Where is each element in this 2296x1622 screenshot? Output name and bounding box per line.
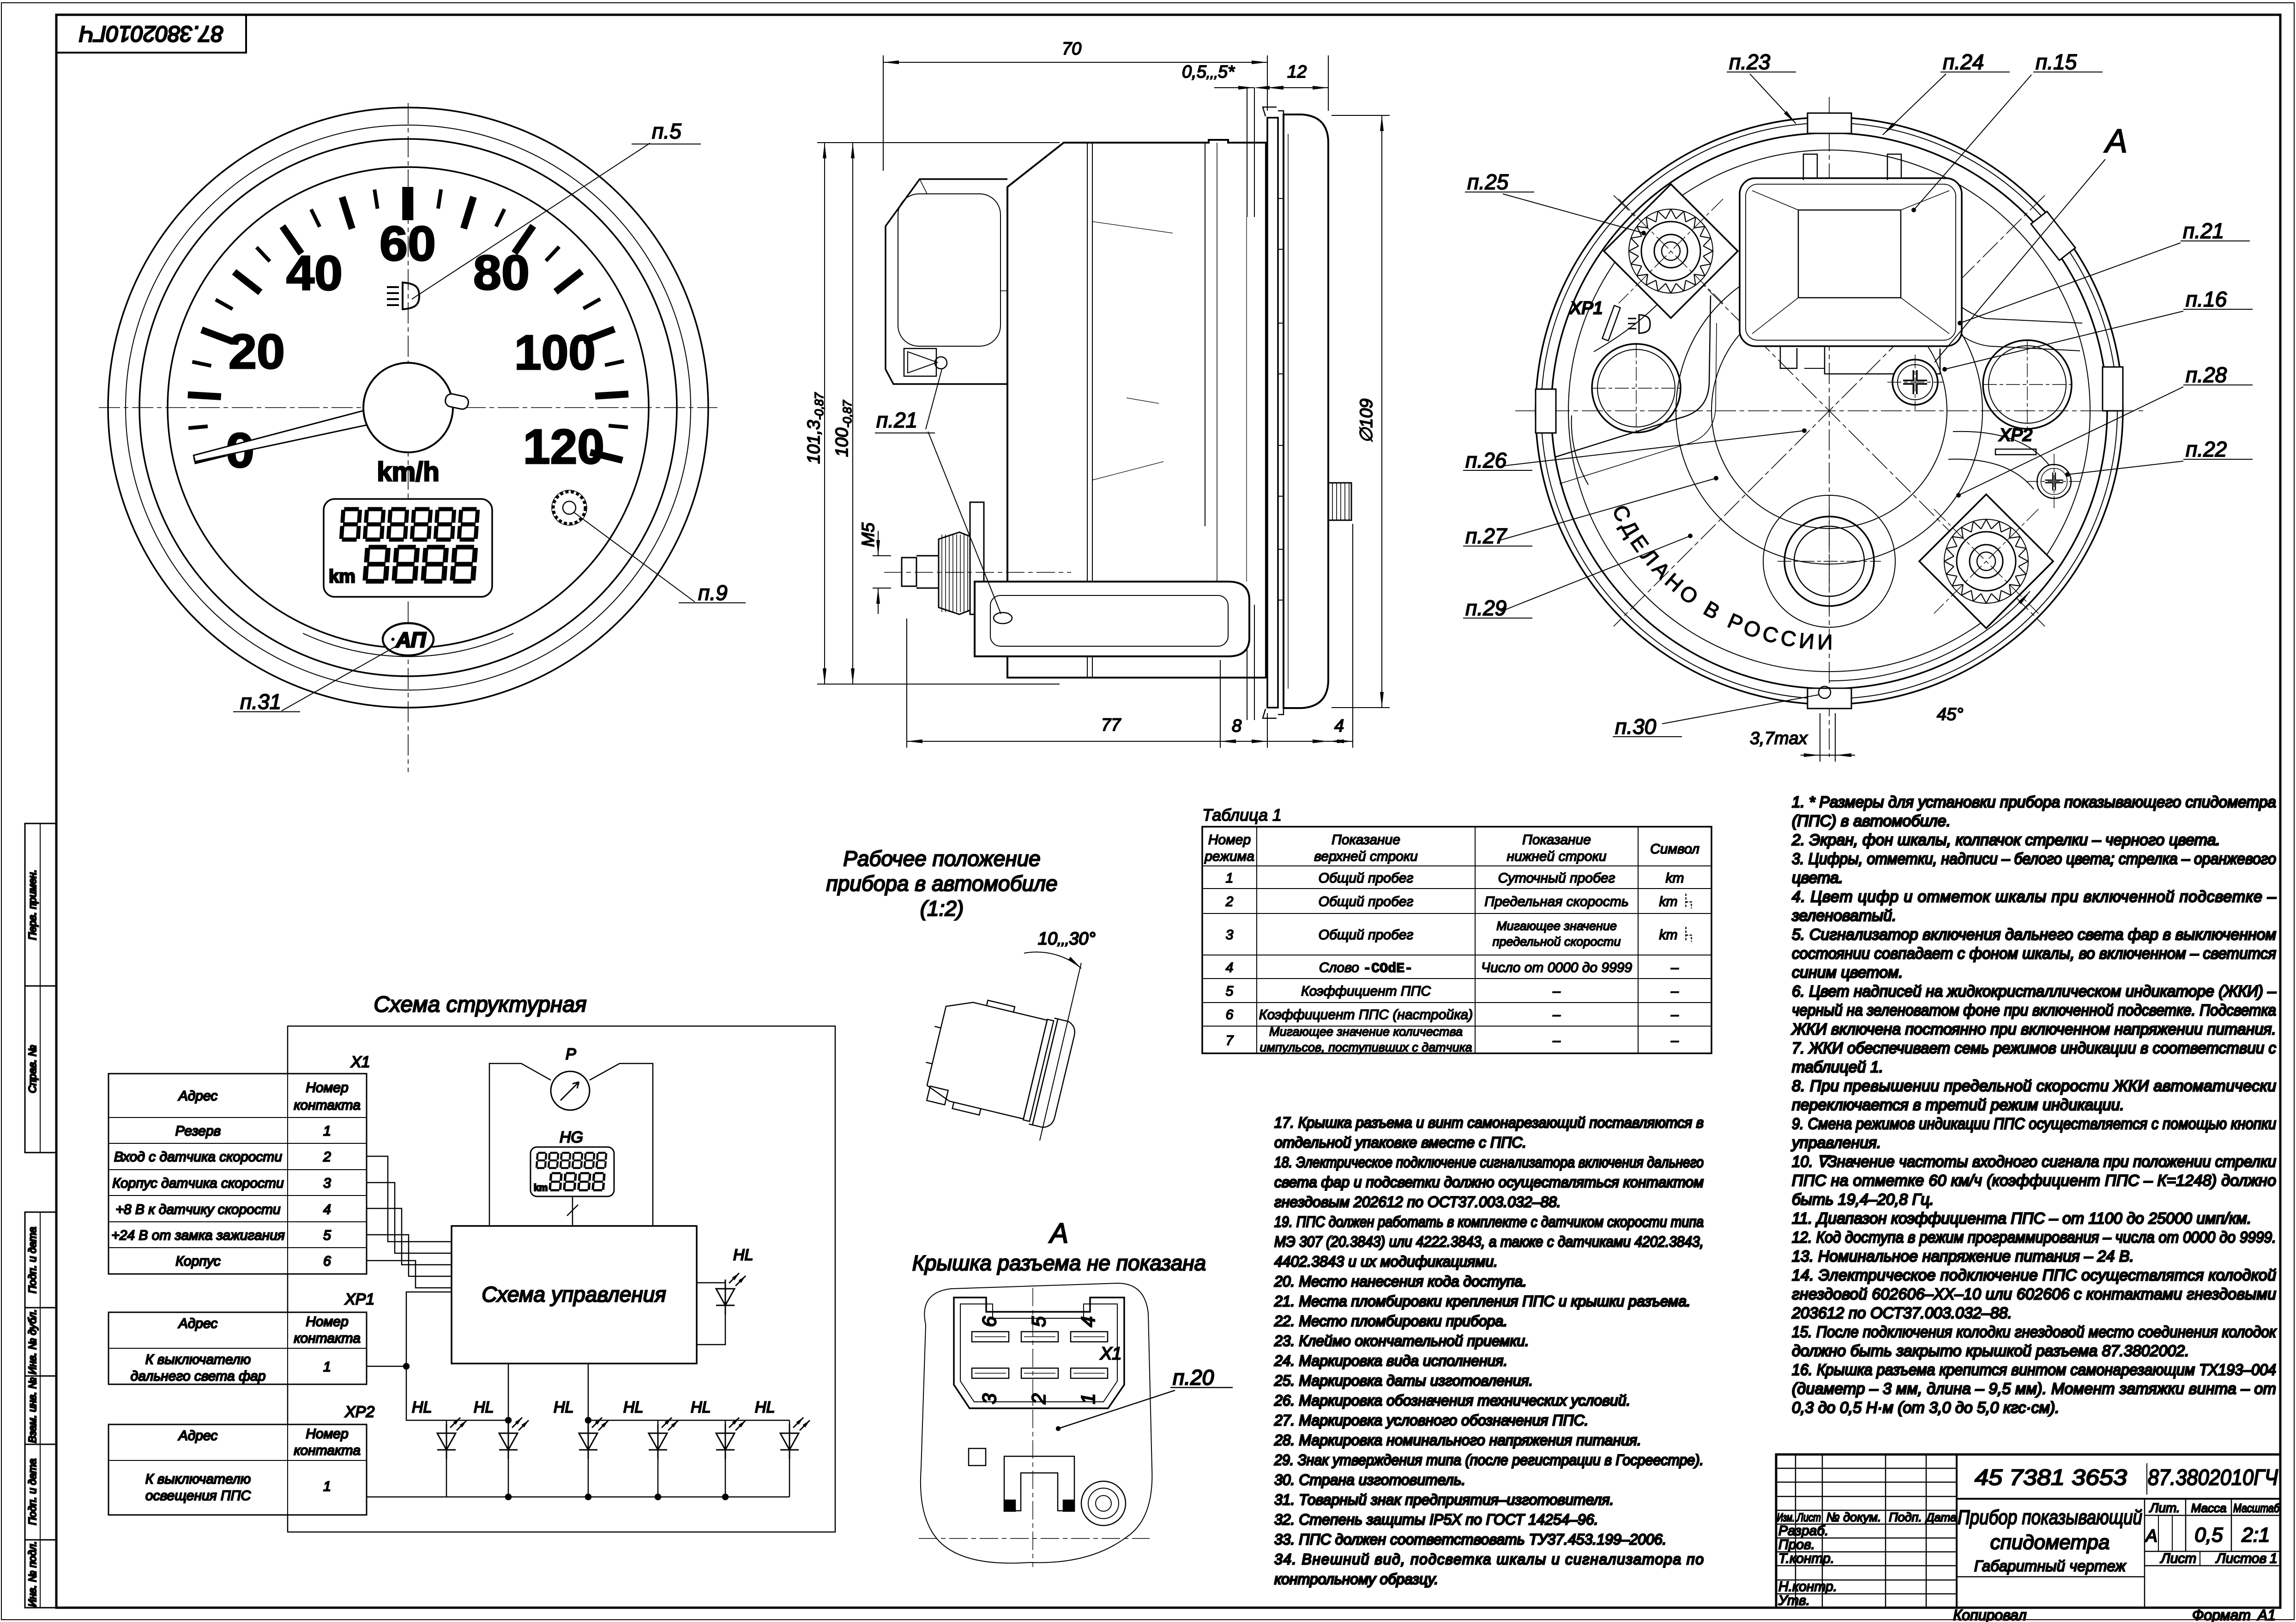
svg-text:1: 1 — [1226, 871, 1234, 886]
svg-text:п.21: п.21 — [2183, 219, 2224, 243]
svg-text:Прибор показывающий: Прибор показывающий — [1958, 1506, 2142, 1529]
svg-text:Перв. примен.: Перв. примен. — [26, 870, 38, 940]
svg-text:Листов: Листов — [2215, 1551, 2266, 1566]
svg-text:(ППС) в автомобиле.: (ППС) в автомобиле. — [1792, 812, 1951, 830]
svg-text:отдельной упаковке вместе с ПП: отдельной упаковке вместе с ППС. — [1274, 1134, 1526, 1151]
svg-text:23. Клеймо окончательной прием: 23. Клеймо окончательной приемки. — [1274, 1333, 1529, 1349]
svg-text:переключается в третий режим и: переключается в третий режим индикации. — [1792, 1096, 2124, 1114]
svg-text:Копировал: Копировал — [1953, 1607, 2026, 1622]
svg-text:1. * Размеры для установки при: 1. * Размеры для установки прибора показ… — [1792, 793, 2276, 811]
svg-text:Предельная скорость: Предельная скорость — [1484, 894, 1628, 909]
svg-text:Масса: Масса — [2191, 1501, 2227, 1515]
svg-text:п.25: п.25 — [1467, 170, 1509, 194]
svg-text:77: 77 — [1101, 715, 1121, 735]
svg-text:таблицей 1.: таблицей 1. — [1792, 1058, 1883, 1076]
svg-text:прибора в автомобиле: прибора в автомобиле — [826, 871, 1057, 895]
svg-text:ХР1: ХР1 — [1569, 299, 1603, 318]
svg-text:быть 19,4–20,8 Гц.: быть 19,4–20,8 Гц. — [1792, 1191, 1934, 1208]
svg-text:5: 5 — [1028, 1316, 1049, 1327]
svg-text:3: 3 — [978, 1394, 1000, 1404]
svg-text:управления.: управления. — [1791, 1134, 1881, 1152]
svg-text:режима: режима — [1204, 849, 1254, 864]
svg-text:13. Номинальное напряжение пит: 13. Номинальное напряжение питания – 24 … — [1792, 1248, 2134, 1265]
svg-text:5. Сигнализатор включения даль: 5. Сигнализатор включения дальнего света… — [1792, 926, 2276, 943]
svg-text:–: – — [1552, 1033, 1561, 1048]
svg-text:–: – — [1670, 1007, 1679, 1022]
svg-text:Резерв: Резерв — [175, 1123, 221, 1139]
svg-text:–: – — [1552, 1007, 1561, 1022]
svg-text:Показание: Показание — [1332, 832, 1400, 847]
svg-text:6: 6 — [323, 1254, 331, 1269]
svg-text:203612 по ОСТ37.003.032–88.: 203612 по ОСТ37.003.032–88. — [1791, 1304, 2012, 1322]
svg-text:Слово -COdE-: Слово -COdE- — [1319, 960, 1413, 977]
svg-text:Н.контр.: Н.контр. — [1778, 1579, 1837, 1594]
svg-text:Масштаб: Масштаб — [2233, 1501, 2280, 1515]
svg-text:km/h: km/h — [377, 457, 439, 487]
svg-text:п.5: п.5 — [652, 119, 681, 143]
svg-text:Номер: Номер — [306, 1426, 348, 1442]
svg-text:4402.3843 и их модификациями.: 4402.3843 и их модификациями. — [1274, 1253, 1498, 1270]
svg-text:Лист: Лист — [1796, 1511, 1821, 1524]
svg-text:Номер: Номер — [306, 1314, 348, 1329]
svg-text:импульсов, поступивших с датчи: импульсов, поступивших с датчика — [1260, 1040, 1472, 1054]
svg-text:Мигающее значение: Мигающее значение — [1496, 919, 1617, 933]
svg-text:km: km — [1659, 927, 1678, 943]
svg-text:Крышка разъема не показана: Крышка разъема не показана — [912, 1251, 1206, 1275]
svg-text:12. Код доступа в режим програ: 12. Код доступа в режим программирования… — [1792, 1229, 2276, 1246]
svg-text:Габаритный чертеж: Габаритный чертеж — [1974, 1557, 2127, 1574]
svg-text:33. ППС должен соответствовать: 33. ППС должен соответствовать ТУ37.453.… — [1274, 1531, 1667, 1548]
svg-text:Адрес: Адрес — [178, 1316, 218, 1331]
svg-text:40: 40 — [286, 246, 343, 300]
svg-text:10. ∇Значение частоты входного: 10. ∇Значение частоты входного сигнала п… — [1792, 1153, 2276, 1171]
svg-text:НL: НL — [691, 1399, 711, 1416]
svg-text:2:1: 2:1 — [2241, 1524, 2270, 1546]
svg-text:спидометра: спидометра — [1990, 1531, 2110, 1554]
svg-text:15. После подключения колодки: 15. После подключения колодки гнездовой … — [1792, 1323, 2277, 1341]
svg-text:НL: НL — [755, 1399, 775, 1416]
svg-text:2: 2 — [1028, 1394, 1049, 1405]
svg-text:Утв.: Утв. — [1778, 1593, 1810, 1608]
svg-text:А: А — [1049, 1218, 1068, 1249]
svg-text:АП: АП — [395, 628, 426, 652]
svg-text:ХР2: ХР2 — [344, 1403, 374, 1421]
svg-text:Адрес: Адрес — [178, 1088, 218, 1104]
svg-text:3. Цифры, отметки, надписи – б: 3. Цифры, отметки, надписи – белого цвет… — [1792, 850, 2276, 868]
svg-text:Суточный пробег: Суточный пробег — [1498, 871, 1615, 886]
svg-text:Подп. и дата: Подп. и дата — [26, 1459, 38, 1525]
svg-text:контакта: контакта — [294, 1443, 361, 1458]
svg-text:А: А — [2145, 1526, 2157, 1546]
svg-text:Подп.: Подп. — [1889, 1510, 1922, 1524]
svg-text:km: km — [534, 1183, 548, 1193]
svg-text:17. Крышка разъема и винт само: 17. Крышка разъема и винт самонарезающий… — [1274, 1114, 1704, 1131]
svg-text:18. Электрическое подключение: 18. Электрическое подключение сигнализат… — [1274, 1154, 1704, 1171]
svg-text:света фар и подсветки должно о: света фар и подсветки должно осуществлят… — [1274, 1174, 1704, 1190]
svg-text:–: – — [1670, 984, 1679, 999]
svg-text:Число от 0000 до 9999: Число от 0000 до 9999 — [1481, 960, 1633, 975]
svg-text:Таблица 1: Таблица 1 — [1202, 805, 1282, 824]
svg-text:п.15: п.15 — [2036, 50, 2077, 74]
svg-text:Дата: Дата — [1925, 1511, 1957, 1524]
svg-text:освещения ППС: освещения ППС — [145, 1488, 251, 1503]
svg-text:нижней строки: нижней строки — [1507, 849, 1607, 864]
svg-text:Корпус: Корпус — [175, 1254, 221, 1269]
svg-text:3: 3 — [323, 1176, 331, 1191]
svg-text:Пров.: Пров. — [1778, 1537, 1815, 1552]
svg-text:Номер: Номер — [1208, 832, 1251, 847]
svg-text:Изм.: Изм. — [1777, 1511, 1795, 1524]
svg-text:1: 1 — [2270, 1551, 2278, 1566]
svg-text:ЖКИ включена постоянно при вкл: ЖКИ включена постоянно при включенном на… — [1791, 1021, 2276, 1038]
svg-text:27. Маркировка условного обозн: 27. Маркировка условного обозначения ППС… — [1274, 1412, 1589, 1429]
svg-text:25. Маркировка даты изготовлен: 25. Маркировка даты изготовления. — [1274, 1372, 1533, 1389]
svg-text:Номер: Номер — [306, 1080, 348, 1095]
svg-text:45°: 45° — [1937, 705, 1963, 724]
svg-text:1: 1 — [323, 1359, 331, 1375]
svg-text:(диаметр – 3 мм, длина – 9,5 м: (диаметр – 3 мм, длина – 9,5 мм). Момент… — [1792, 1380, 2276, 1398]
svg-text:7. ЖКИ обеспечивает семь режим: 7. ЖКИ обеспечивает семь режимов индикац… — [1792, 1039, 2276, 1057]
svg-text:Лит.: Лит. — [2149, 1501, 2180, 1515]
svg-text:Коэффициент ППС: Коэффициент ППС — [1301, 984, 1431, 999]
svg-text:70: 70 — [1062, 39, 1081, 59]
svg-text:3: 3 — [1226, 927, 1234, 943]
svg-text:Общий пробег: Общий пробег — [1319, 927, 1414, 943]
svg-text:Корпус датчика скорости: Корпус датчика скорости — [112, 1176, 284, 1191]
svg-text:п.31: п.31 — [240, 690, 281, 714]
svg-text:синим цветом.: синим цветом. — [1792, 964, 1903, 981]
svg-text:п.22: п.22 — [2186, 437, 2227, 461]
svg-text:Подп. и дата: Подп. и дата — [26, 1227, 38, 1293]
svg-text:∅109: ∅109 — [1357, 398, 1376, 443]
svg-text:45 7381 3653: 45 7381 3653 — [1975, 1466, 2127, 1490]
svg-text:+8 В к датчику скорости: +8 В к датчику скорости — [115, 1202, 281, 1217]
svg-text:(1:2): (1:2) — [920, 896, 964, 920]
svg-text:А1: А1 — [2257, 1607, 2276, 1622]
svg-text:Инв. № подл.: Инв. № подл. — [26, 1541, 38, 1607]
svg-text:п.16: п.16 — [2186, 287, 2227, 311]
svg-text:Общий пробег: Общий пробег — [1319, 871, 1414, 886]
svg-text:дальнего света фар: дальнего света фар — [131, 1369, 266, 1384]
svg-text:4: 4 — [1226, 960, 1234, 975]
svg-text:Схема структурная: Схема структурная — [374, 992, 586, 1017]
svg-text:7: 7 — [1226, 1033, 1234, 1048]
svg-text:6: 6 — [978, 1316, 1000, 1327]
svg-text:Х1: Х1 — [350, 1053, 370, 1071]
svg-text:Символ: Символ — [1650, 841, 1699, 857]
svg-text:3,7mах: 3,7mах — [1750, 729, 1808, 748]
svg-text:30. Страна изготовитель.: 30. Страна изготовитель. — [1274, 1472, 1465, 1488]
svg-text:0,5,,,5*: 0,5,,,5* — [1182, 62, 1235, 82]
svg-text:контакта: контакта — [294, 1098, 361, 1113]
svg-text:Инв. № дубл.: Инв. № дубл. — [26, 1309, 38, 1374]
svg-text:предельной скорости: предельной скорости — [1493, 935, 1621, 949]
svg-text:1: 1 — [323, 1123, 331, 1139]
svg-text:2. Экран, фон шкалы, колпачок: 2. Экран, фон шкалы, колпачок стрелки – … — [1791, 831, 2220, 849]
svg-text:–: – — [1552, 984, 1561, 999]
svg-text:НG: НG — [560, 1129, 583, 1146]
svg-text:km: km — [1666, 871, 1684, 886]
svg-text:должно быть закрыто крышкой ра: должно быть закрыто крышкой разъема 87.3… — [1792, 1342, 2189, 1360]
svg-text:26. Маркировка обозначения тех: 26. Маркировка обозначения технических у… — [1274, 1392, 1630, 1409]
svg-text:ХР1: ХР1 — [344, 1291, 374, 1308]
svg-text:п.24: п.24 — [1943, 50, 1984, 74]
svg-text:Вход с датчика скорости: Вход с датчика скорости — [114, 1149, 282, 1165]
svg-text:24. Маркировка вида исполнения: 24. Маркировка вида исполнения. — [1274, 1352, 1507, 1369]
svg-text:31. Товарный знак предприятия–: 31. Товарный знак предприятия–изготовите… — [1274, 1491, 1614, 1508]
svg-text:12: 12 — [1287, 62, 1307, 82]
svg-text:0,5: 0,5 — [2194, 1524, 2223, 1546]
svg-text:28. Маркировка номинального на: 28. Маркировка номинального напряжения п… — [1274, 1432, 1641, 1448]
svg-text:зеленоватый.: зеленоватый. — [1791, 907, 1897, 925]
svg-text:К выключателю: К выключателю — [145, 1352, 251, 1367]
svg-text:М5: М5 — [859, 522, 878, 547]
svg-text:Общий пробег: Общий пробег — [1319, 894, 1414, 909]
svg-text:Схема управления: Схема управления — [482, 1282, 666, 1306]
svg-text:4: 4 — [323, 1202, 331, 1217]
svg-text:5: 5 — [1226, 984, 1234, 999]
svg-text:2: 2 — [323, 1149, 331, 1165]
svg-text:10,,,30°: 10,,,30° — [1038, 929, 1096, 949]
svg-text:34. Внешний вид, подсветка шка: 34. Внешний вид, подсветка шкалы и сигна… — [1274, 1551, 1704, 1568]
svg-text:п.9: п.9 — [698, 581, 728, 605]
svg-text:Х1: Х1 — [1100, 1344, 1121, 1364]
svg-text:Адрес: Адрес — [178, 1428, 218, 1443]
svg-text:1: 1 — [323, 1479, 331, 1494]
svg-text:87.3802010ГЧ: 87.3802010ГЧ — [2148, 1466, 2278, 1490]
svg-text:Показание: Показание — [1522, 832, 1591, 847]
svg-text:черный на зеленоватом фоне при: черный на зеленоватом фоне при включенно… — [1792, 1002, 2276, 1019]
svg-text:Р: Р — [566, 1045, 576, 1063]
svg-text:цвета.: цвета. — [1792, 869, 1843, 887]
svg-text:22. Место пломбировки прибора.: 22. Место пломбировки прибора. — [1274, 1313, 1507, 1329]
svg-text:9. Смена режимов индикации ППС: 9. Смена режимов индикации ППС осуществл… — [1792, 1115, 2276, 1133]
svg-text:6: 6 — [1226, 1007, 1234, 1022]
svg-text:Справ. №: Справ. № — [26, 1045, 38, 1093]
svg-text:НL: НL — [554, 1399, 573, 1416]
svg-text:14. Электрическое подключение: 14. Электрическое подключение ППС осущес… — [1792, 1267, 2276, 1284]
svg-text:20. Место нанесения кода досту: 20. Место нанесения кода доступа. — [1274, 1273, 1527, 1290]
svg-text:–: – — [1670, 960, 1679, 975]
svg-text:6. Цвет надписей на жидкокрист: 6. Цвет надписей на жидкокристаллическом… — [1792, 983, 2277, 1000]
svg-text:Лист: Лист — [2160, 1551, 2196, 1566]
svg-text:8. При превышении предельной с: 8. При превышении предельной скорости ЖК… — [1792, 1077, 2276, 1095]
svg-text:А: А — [2103, 123, 2127, 160]
svg-text:4. Цвет цифр и отметок шкалы п: 4. Цвет цифр и отметок шкалы при включен… — [1792, 888, 2277, 906]
svg-text:1: 1 — [1077, 1394, 1099, 1404]
svg-text:контакта: контакта — [294, 1331, 361, 1346]
svg-text:11. Диапазон коэффициента ППС: 11. Диапазон коэффициента ППС – от 1100 … — [1792, 1210, 2251, 1227]
svg-text:100: 100 — [514, 325, 596, 380]
svg-text:87.3802010ГЧ: 87.3802010ГЧ — [79, 21, 223, 46]
svg-text:№ докум.: № докум. — [1826, 1510, 1881, 1524]
svg-text:19. ППС должен работать в комп: 19. ППС должен работать в комплекте с да… — [1274, 1213, 1704, 1230]
svg-text:60: 60 — [380, 216, 436, 271]
svg-text:гнездовым 202612 по ОСТ37.003.: гнездовым 202612 по ОСТ37.003.032–88. — [1274, 1194, 1561, 1210]
svg-text:гнездовой 602606–ХХ–10 или 602: гнездовой 602606–ХХ–10 или 602606 с конт… — [1792, 1286, 2276, 1303]
svg-text:Взам. инв. №: Взам. инв. № — [26, 1377, 38, 1443]
svg-text:п.23: п.23 — [1729, 50, 1771, 74]
svg-text:п.21: п.21 — [876, 408, 917, 432]
svg-text:ХР2: ХР2 — [1999, 426, 2032, 445]
svg-text:верхней строки: верхней строки — [1314, 849, 1418, 864]
svg-text:п.30: п.30 — [1615, 715, 1657, 739]
svg-text:ППС на отметке 60 км/ч (коэффи: ППС на отметке 60 км/ч (коэффициент ППС … — [1792, 1172, 2276, 1189]
svg-text:5: 5 — [323, 1228, 331, 1243]
svg-text:8: 8 — [1232, 716, 1241, 736]
svg-text:Рабочее положение: Рабочее положение — [843, 847, 1041, 871]
svg-text:Разраб.: Разраб. — [1778, 1523, 1829, 1538]
svg-text:п.27: п.27 — [1465, 524, 1507, 548]
svg-text:Т.контр.: Т.контр. — [1778, 1551, 1834, 1566]
svg-text:29. Знак утверждения типа (пос: 29. Знак утверждения типа (после регистр… — [1274, 1452, 1704, 1468]
svg-text:–: – — [1670, 1033, 1679, 1048]
svg-text:km: km — [1659, 894, 1678, 909]
svg-text:НL: НL — [623, 1399, 643, 1416]
svg-text:+24 В от замка зажигания: +24 В от замка зажигания — [111, 1228, 285, 1243]
svg-text:п.29: п.29 — [1465, 596, 1507, 620]
svg-text:п.28: п.28 — [2186, 363, 2227, 387]
svg-text:32. Степень защиты IР5Х по ГОС: 32. Степень защиты IР5Х по ГОСТ 14254–96… — [1274, 1511, 1598, 1528]
svg-text:НL: НL — [733, 1246, 753, 1264]
svg-text:НL: НL — [412, 1399, 432, 1416]
svg-text:К выключателю: К выключателю — [145, 1472, 251, 1487]
svg-text:21. Места пломбировки креплени: 21. Места пломбировки крепления ППС и кр… — [1274, 1293, 1691, 1310]
svg-text:Формат: Формат — [2192, 1607, 2251, 1622]
svg-text:20: 20 — [229, 324, 285, 379]
svg-text:п.26: п.26 — [1465, 448, 1507, 472]
svg-text:0,3 до 0,5 Н·м (от 3,0 до 5,0: 0,3 до 0,5 Н·м (от 3,0 до 5,0 кгс·см). — [1792, 1399, 2060, 1417]
svg-text:п.20: п.20 — [1173, 1365, 1214, 1389]
svg-text:2: 2 — [1225, 894, 1234, 909]
svg-text:16. Крышка разъема крепится ви: 16. Крышка разъема крепится винтом самон… — [1792, 1361, 2276, 1379]
svg-text:4: 4 — [1077, 1316, 1099, 1327]
svg-text:состоянии совпадает с фоном шк: состоянии совпадает с фоном шкалы, во вк… — [1792, 945, 2276, 962]
svg-text:МЭ 307 (20.3843) или 4222.3843: МЭ 307 (20.3843) или 4222.3843, а также … — [1274, 1233, 1704, 1250]
svg-text:контрольному образцу.: контрольному образцу. — [1274, 1571, 1438, 1587]
svg-text:4: 4 — [1334, 716, 1344, 736]
svg-text:Коэффициент ППС (настройка): Коэффициент ППС (настройка) — [1259, 1007, 1473, 1022]
svg-text:km: km — [329, 566, 356, 587]
svg-text:120: 120 — [523, 420, 604, 474]
svg-text:НL: НL — [474, 1399, 494, 1416]
svg-text:Мигающее значение количества: Мигающее значение количества — [1269, 1025, 1463, 1039]
